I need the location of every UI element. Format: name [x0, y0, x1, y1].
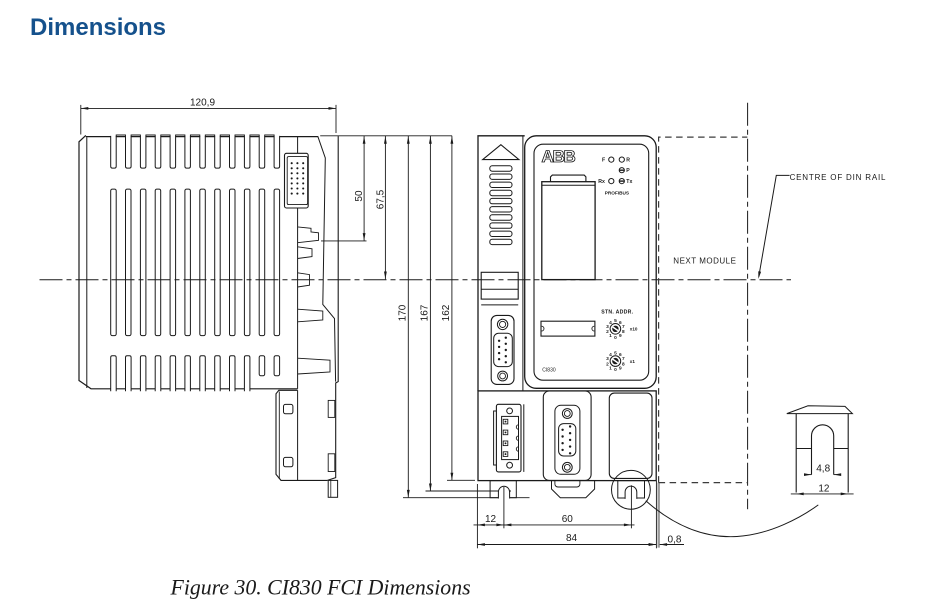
svg-text:4,8: 4,8: [816, 464, 830, 475]
svg-text:2: 2: [606, 361, 609, 367]
svg-text:4: 4: [609, 320, 612, 326]
svg-text:0: 0: [614, 367, 617, 373]
svg-text:NEXT MODULE: NEXT MODULE: [673, 257, 736, 266]
svg-text:4: 4: [609, 352, 612, 358]
svg-text:60: 60: [562, 514, 574, 525]
svg-text:9: 9: [619, 366, 622, 372]
svg-text:Figure 30. CI830 FCI Dimension: Figure 30. CI830 FCI Dimensions: [170, 576, 471, 600]
svg-text:Tx: Tx: [626, 179, 632, 185]
svg-text:0,8: 0,8: [668, 534, 682, 545]
svg-text:8: 8: [622, 361, 625, 367]
svg-text:STN. ADDR.: STN. ADDR.: [601, 309, 633, 315]
svg-text:P: P: [626, 168, 630, 174]
svg-text:120,9: 120,9: [190, 98, 215, 109]
svg-text:5: 5: [614, 318, 617, 324]
svg-text:CI830: CI830: [542, 368, 556, 374]
svg-text:R: R: [626, 158, 630, 164]
svg-text:9: 9: [619, 333, 622, 339]
svg-text:1: 1: [609, 333, 612, 339]
svg-text:PROFIBUS: PROFIBUS: [605, 190, 629, 195]
svg-text:F: F: [602, 158, 605, 164]
svg-text:5: 5: [614, 351, 617, 357]
svg-text:Rx: Rx: [598, 179, 605, 185]
svg-text:x1: x1: [630, 359, 636, 364]
svg-text:7: 7: [622, 356, 625, 362]
svg-text:0: 0: [614, 335, 617, 341]
svg-text:1: 1: [609, 366, 612, 372]
svg-text:ABB: ABB: [542, 147, 576, 166]
svg-text:Dimensions: Dimensions: [30, 14, 166, 41]
svg-text:167: 167: [420, 304, 431, 321]
svg-text:50: 50: [354, 190, 365, 202]
svg-text:2: 2: [606, 329, 609, 335]
svg-text:12: 12: [485, 514, 497, 525]
svg-text:12: 12: [818, 484, 830, 495]
svg-text:84: 84: [566, 533, 578, 544]
svg-text:CENTRE OF DIN RAIL: CENTRE OF DIN RAIL: [790, 173, 887, 182]
svg-text:8: 8: [622, 329, 625, 335]
svg-text:67,5: 67,5: [376, 189, 387, 209]
svg-text:162: 162: [441, 304, 452, 321]
svg-text:170: 170: [398, 304, 409, 321]
svg-text:x10: x10: [630, 327, 638, 332]
svg-text:7: 7: [622, 324, 625, 330]
